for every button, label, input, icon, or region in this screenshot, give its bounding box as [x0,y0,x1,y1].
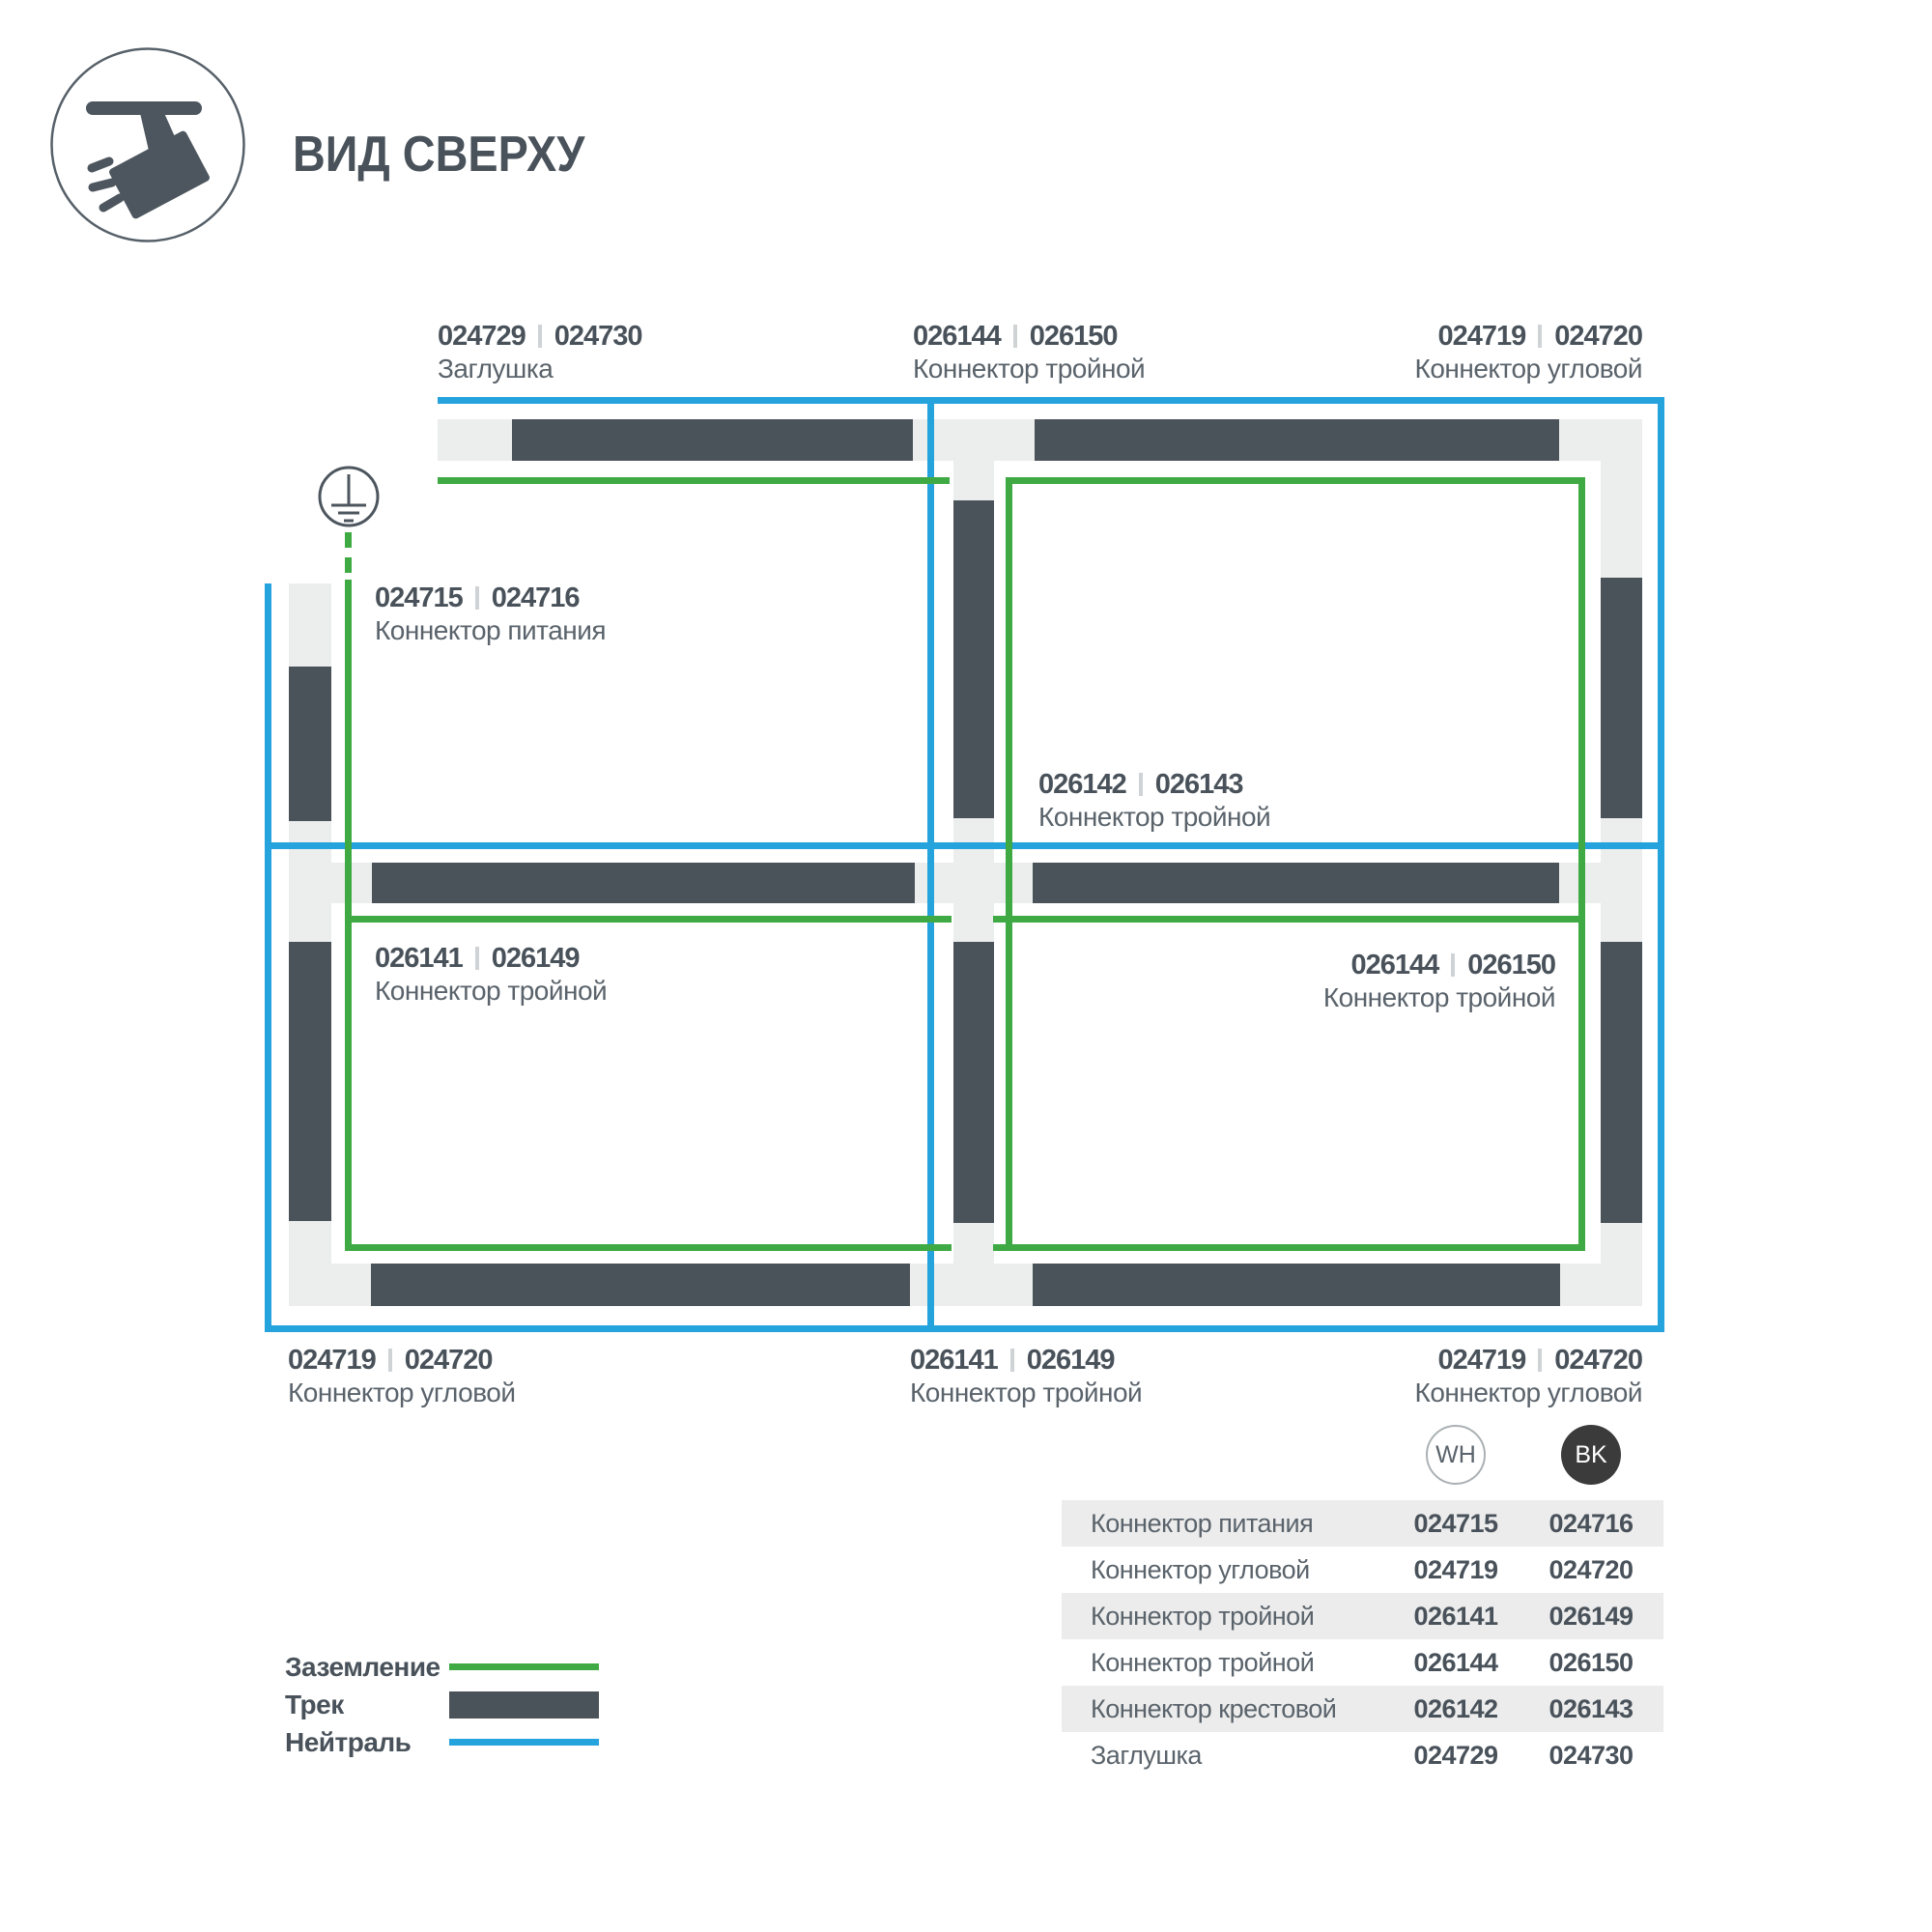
wh-code-cell: 024729 [1393,1741,1519,1771]
bk-code-cell: 026143 [1519,1694,1663,1724]
track-spotlight-icon [48,45,247,244]
power-connector [289,583,331,667]
track-segment [289,667,331,821]
end-cap-connector [438,419,512,461]
legend-label: Заземление [285,1652,440,1683]
code-wh: 026144 [1350,950,1438,980]
article-codes: 026141026149 [375,944,607,974]
article-codes: 026141026149 [910,1346,1142,1376]
color-badge-white: WH [1426,1425,1486,1485]
ground-line-middle-left [345,916,952,923]
track-segment [371,1264,910,1306]
code-wh: 026144 [913,321,1001,352]
t-connector-left [289,821,331,942]
ground-line-middle-right [993,916,1585,923]
track-segment [1035,419,1559,461]
code-bk: 026149 [1027,1345,1115,1376]
article-codes: 024729024730 [438,322,642,352]
wh-code-cell: 024719 [1393,1555,1519,1585]
code-wh: 024719 [1437,321,1525,352]
t-connector-right [1601,818,1642,942]
table-row: Коннектор питания 024715 024716 [1062,1500,1663,1547]
label-center: 026142026143 Коннектор тройной [1038,770,1270,834]
track-segment [512,419,913,461]
code-bk: 026149 [492,943,580,974]
bk-code-cell: 024716 [1519,1509,1663,1539]
bk-code-cell: 024730 [1519,1741,1663,1771]
corner-connector-top-right-leg [1601,461,1642,578]
track-segment [1033,863,1559,903]
code-wh: 024719 [288,1345,376,1376]
code-separator [1538,325,1542,348]
label-bottom-left: 024719024720 Коннектор угловой [288,1346,515,1409]
code-wh: 026142 [1038,769,1126,800]
code-wh: 024729 [438,321,526,352]
article-codes: 024719024720 [1415,1346,1642,1376]
part-name: Коннектор угловой [1415,353,1642,385]
neutral-line-left [265,583,271,1332]
article-codes: 024719024720 [288,1346,515,1376]
code-separator [1451,953,1455,977]
ground-line-right-vertical [1578,477,1585,1251]
code-wh: 026141 [910,1345,998,1376]
label-top-right: 024719024720 Коннектор угловой [1415,322,1642,385]
earth-ground-icon [317,465,381,528]
label-power-connector: 024715024716 Коннектор питания [375,583,606,647]
part-name-cell: Коннектор угловой [1062,1555,1393,1585]
part-name: Коннектор угловой [1415,1377,1642,1409]
corner-connector-bottom-right-leg [1601,1223,1642,1306]
code-bk: 026143 [1155,769,1243,800]
part-name: Коннектор тройной [1323,981,1555,1014]
code-wh: 024715 [375,582,463,613]
part-name: Заглушка [438,353,642,385]
t-connector-top-stem [953,461,994,500]
neutral-line-bottom [265,1325,1664,1332]
ground-line-bottom-left [345,1244,952,1251]
track-segment [372,863,915,903]
part-name-cell: Коннектор тройной [1062,1602,1393,1632]
code-bk: 024720 [405,1345,493,1376]
code-wh: 026141 [375,943,463,974]
ceiling-track-bar [86,101,202,115]
parts-table: Коннектор питания 024715 024716 Коннекто… [1062,1500,1663,1778]
corner-connector-top-right [1559,419,1642,461]
code-separator [1013,325,1017,348]
part-name: Коннектор тройной [910,1377,1142,1409]
wh-code-cell: 026141 [1393,1602,1519,1632]
code-separator [388,1349,392,1372]
table-row: Коннектор крестовой 026142 026143 [1062,1686,1663,1732]
code-separator [1139,773,1143,796]
legend-label: Нейтраль [285,1727,411,1758]
t-connector-left-stem [331,863,372,903]
ground-line-swatch [449,1663,599,1670]
legend-label: Трек [285,1690,344,1720]
page-title: ВИД СВЕРХУ [293,126,584,184]
label-mid-left: 026141026149 Коннектор тройной [375,944,607,1008]
track-bar-swatch [449,1691,599,1719]
ground-line-center-vertical [1006,477,1012,1251]
code-bk: 026150 [1467,950,1555,980]
table-row: Коннектор угловой 024719 024720 [1062,1547,1663,1593]
part-name: Коннектор тройной [1038,801,1270,834]
track-segment [1601,942,1642,1223]
legend-item-track: Трек [285,1686,604,1723]
code-separator [1010,1349,1014,1372]
ground-line-dash [345,532,352,548]
part-name-cell: Коннектор питания [1062,1509,1393,1539]
label-mid-right: 026144026150 Коннектор тройной [1323,951,1555,1014]
part-name: Коннектор угловой [288,1377,515,1409]
part-name-cell: Коннектор крестовой [1062,1694,1393,1724]
track-segment [953,942,994,1223]
article-codes: 026142026143 [1038,770,1270,800]
ground-line-top-right [1006,477,1585,484]
code-separator [1538,1349,1542,1372]
ground-line-dash [345,557,352,573]
bk-code-cell: 026149 [1519,1602,1663,1632]
label-top-center: 026144026150 Коннектор тройной [913,322,1145,385]
corner-connector-bottom-left [289,1221,331,1306]
neutral-line-middle-vertical [927,397,934,1332]
corner-connector-bottom-left-leg [331,1264,371,1306]
code-separator [475,586,479,610]
t-connector-bottom-stem [953,1223,994,1264]
code-bk: 024716 [492,582,580,613]
wh-code-cell: 026142 [1393,1694,1519,1724]
part-name: Коннектор питания [375,614,606,647]
neutral-line-swatch [449,1739,599,1746]
wh-code-cell: 024715 [1393,1509,1519,1539]
ground-line-bottom-right [993,1244,1585,1251]
track-segment [1601,578,1642,818]
article-codes: 026144026150 [913,322,1145,352]
wh-code-cell: 026144 [1393,1648,1519,1678]
track-segment [953,500,994,818]
color-badge-black: BK [1561,1425,1621,1485]
table-row: Заглушка 024729 024730 [1062,1732,1663,1778]
table-row: Коннектор тройной 026144 026150 [1062,1639,1663,1686]
code-separator [475,947,479,970]
part-name-cell: Заглушка [1062,1741,1393,1771]
label-bottom-right: 024719024720 Коннектор угловой [1415,1346,1642,1409]
part-name-cell: Коннектор тройной [1062,1648,1393,1678]
code-wh: 024719 [1437,1345,1525,1376]
label-bottom-center: 026141026149 Коннектор тройной [910,1346,1142,1409]
neutral-line-right [1658,397,1664,1332]
table-row: Коннектор тройной 026141 026149 [1062,1593,1663,1639]
track-segment [289,942,331,1221]
article-codes: 024715024716 [375,583,606,613]
article-codes: 024719024720 [1415,322,1642,352]
code-separator [538,325,542,348]
neutral-line-middle-horizontal [265,842,1664,849]
page: ВИД СВЕРХУ [0,0,1932,1932]
neutral-line-top [438,397,1664,404]
part-name: Коннектор тройной [913,353,1145,385]
code-bk: 024720 [1554,321,1642,352]
ground-line-left-vertical [345,580,352,1251]
label-top-left: 024729024730 Заглушка [438,322,642,385]
legend-item-ground: Заземление [285,1648,604,1686]
legend-item-neutral: Нейтраль [285,1723,604,1761]
article-codes: 026144026150 [1323,951,1555,980]
code-bk: 024720 [1554,1345,1642,1376]
bk-code-cell: 024720 [1519,1555,1663,1585]
code-bk: 026150 [1030,321,1118,352]
part-name: Коннектор тройной [375,975,607,1008]
code-bk: 024730 [554,321,642,352]
track-segment [1033,1264,1560,1306]
ground-line-top-left [438,477,950,484]
bk-code-cell: 026150 [1519,1648,1663,1678]
